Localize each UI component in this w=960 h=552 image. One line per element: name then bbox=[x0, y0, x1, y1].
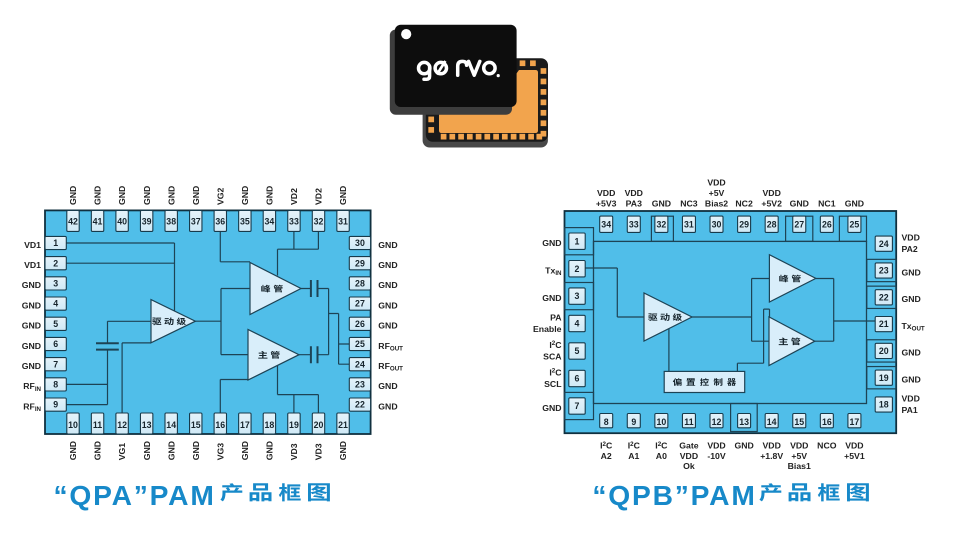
svg-text:3: 3 bbox=[575, 291, 580, 301]
svg-text:15: 15 bbox=[794, 417, 804, 427]
svg-text:1: 1 bbox=[575, 236, 580, 246]
svg-text:18: 18 bbox=[265, 420, 275, 430]
svg-text:41: 41 bbox=[93, 216, 103, 226]
svg-text:7: 7 bbox=[53, 359, 58, 369]
svg-text:29: 29 bbox=[355, 258, 365, 268]
svg-text:14: 14 bbox=[166, 420, 176, 430]
svg-text:Ok: Ok bbox=[683, 461, 695, 471]
svg-text:26: 26 bbox=[822, 220, 832, 230]
svg-text:21: 21 bbox=[338, 420, 348, 430]
svg-text:36: 36 bbox=[215, 216, 225, 226]
svg-text:VD1: VD1 bbox=[24, 240, 41, 250]
svg-text:GND: GND bbox=[265, 186, 275, 205]
svg-text:I2C: I2C bbox=[628, 441, 641, 451]
svg-text:PA1: PA1 bbox=[902, 405, 918, 415]
svg-text:2: 2 bbox=[575, 264, 580, 274]
svg-text:27: 27 bbox=[355, 299, 365, 309]
svg-text:19: 19 bbox=[289, 420, 299, 430]
svg-text:5: 5 bbox=[53, 319, 58, 329]
svg-text:35: 35 bbox=[240, 216, 250, 226]
svg-text:VDD: VDD bbox=[707, 178, 725, 188]
svg-text:NCO: NCO bbox=[817, 441, 837, 451]
svg-text:GND: GND bbox=[378, 280, 397, 290]
svg-text:I2C: I2C bbox=[549, 367, 562, 377]
svg-text:VG3: VG3 bbox=[215, 443, 225, 461]
svg-text:RFOUT: RFOUT bbox=[378, 341, 403, 353]
svg-text:VDD: VDD bbox=[680, 451, 698, 461]
svg-text:I2C: I2C bbox=[600, 441, 613, 451]
svg-text:GND: GND bbox=[902, 294, 921, 304]
svg-text:+5V: +5V bbox=[709, 188, 725, 198]
svg-text:GND: GND bbox=[142, 186, 152, 205]
svg-text:VDD: VDD bbox=[902, 233, 920, 243]
svg-text:28: 28 bbox=[767, 220, 777, 230]
svg-text:GND: GND bbox=[542, 293, 561, 303]
svg-text:40: 40 bbox=[117, 216, 127, 226]
svg-text:Gate: Gate bbox=[679, 441, 698, 451]
svg-text:6: 6 bbox=[53, 339, 58, 349]
svg-text:8: 8 bbox=[53, 380, 58, 390]
svg-text:SCA: SCA bbox=[543, 351, 562, 361]
svg-text:VDD: VDD bbox=[790, 441, 808, 451]
svg-text:19: 19 bbox=[879, 373, 889, 383]
svg-text:A0: A0 bbox=[656, 451, 667, 461]
svg-text:NC3: NC3 bbox=[680, 198, 698, 208]
svg-text:I2C: I2C bbox=[655, 441, 668, 451]
svg-text:GND: GND bbox=[378, 300, 397, 310]
svg-text:GND: GND bbox=[378, 381, 397, 391]
svg-text:PA2: PA2 bbox=[902, 244, 918, 254]
svg-text:VG2: VG2 bbox=[215, 187, 225, 205]
svg-text:13: 13 bbox=[142, 420, 152, 430]
svg-text:RFOUT: RFOUT bbox=[378, 361, 403, 373]
svg-text:TxIN: TxIN bbox=[545, 266, 562, 278]
svg-text:VDD: VDD bbox=[625, 188, 643, 198]
svg-text:GND: GND bbox=[22, 280, 41, 290]
svg-text:“QPB”PAM: “QPB”PAM bbox=[592, 479, 756, 511]
svg-text:GND: GND bbox=[338, 186, 348, 205]
svg-text:RFIN: RFIN bbox=[23, 381, 41, 393]
svg-text:11: 11 bbox=[93, 420, 102, 430]
svg-text:20: 20 bbox=[879, 346, 889, 356]
svg-text:31: 31 bbox=[338, 216, 348, 226]
svg-text:GND: GND bbox=[240, 441, 250, 460]
svg-text:+1.8V: +1.8V bbox=[760, 451, 783, 461]
svg-text:30: 30 bbox=[712, 220, 722, 230]
svg-text:18: 18 bbox=[879, 400, 889, 410]
svg-text:I2C: I2C bbox=[549, 340, 562, 350]
svg-text:39: 39 bbox=[142, 216, 152, 226]
svg-text:VDD: VDD bbox=[902, 393, 920, 403]
svg-text:GND: GND bbox=[142, 441, 152, 460]
svg-text:PA3: PA3 bbox=[626, 198, 642, 208]
svg-text:Enable: Enable bbox=[533, 324, 562, 334]
svg-text:4: 4 bbox=[575, 319, 580, 329]
svg-text:22: 22 bbox=[879, 292, 889, 302]
svg-text:24: 24 bbox=[879, 239, 889, 249]
svg-text:37: 37 bbox=[191, 216, 201, 226]
svg-text:28: 28 bbox=[355, 279, 365, 289]
svg-text:30: 30 bbox=[355, 238, 365, 248]
svg-text:10: 10 bbox=[656, 417, 666, 427]
svg-text:22: 22 bbox=[355, 400, 365, 410]
svg-text:6: 6 bbox=[575, 374, 580, 384]
svg-text:GND: GND bbox=[734, 441, 753, 451]
svg-text:GND: GND bbox=[542, 238, 561, 248]
svg-text:+5V1: +5V1 bbox=[844, 451, 865, 461]
svg-text:PA: PA bbox=[550, 312, 562, 322]
svg-text:GND: GND bbox=[652, 198, 671, 208]
svg-text:20: 20 bbox=[314, 420, 324, 430]
svg-text:14: 14 bbox=[767, 417, 777, 427]
svg-text:NC1: NC1 bbox=[818, 198, 836, 208]
svg-text:RFIN: RFIN bbox=[23, 401, 41, 413]
svg-text:13: 13 bbox=[739, 417, 749, 427]
svg-text:34: 34 bbox=[601, 220, 611, 230]
svg-text:+5V3: +5V3 bbox=[596, 198, 617, 208]
svg-text:“QPA”PAM: “QPA”PAM bbox=[54, 479, 216, 511]
svg-text:12: 12 bbox=[712, 417, 722, 427]
svg-text:GND: GND bbox=[22, 361, 41, 371]
svg-text:GND: GND bbox=[93, 441, 103, 460]
svg-text:25: 25 bbox=[355, 339, 365, 349]
svg-text:31: 31 bbox=[684, 220, 694, 230]
svg-text:SCL: SCL bbox=[544, 379, 562, 389]
svg-text:GND: GND bbox=[378, 321, 397, 331]
svg-text:VDD: VDD bbox=[597, 188, 615, 198]
svg-text:VDD: VDD bbox=[845, 441, 863, 451]
svg-text:GND: GND bbox=[93, 186, 103, 205]
svg-text:GND: GND bbox=[378, 260, 397, 270]
svg-text:TxOUT: TxOUT bbox=[902, 321, 925, 333]
svg-text:GND: GND bbox=[117, 186, 127, 205]
svg-text:42: 42 bbox=[68, 216, 78, 226]
svg-text:23: 23 bbox=[879, 266, 889, 276]
svg-text:16: 16 bbox=[215, 420, 225, 430]
svg-text:25: 25 bbox=[850, 220, 860, 230]
svg-text:+5V: +5V bbox=[791, 451, 807, 461]
svg-text:VG1: VG1 bbox=[117, 443, 127, 461]
svg-text:3: 3 bbox=[53, 279, 58, 289]
svg-text:17: 17 bbox=[850, 417, 860, 427]
svg-text:8: 8 bbox=[604, 417, 609, 427]
svg-text:VDD: VDD bbox=[763, 188, 781, 198]
svg-text:33: 33 bbox=[629, 220, 639, 230]
svg-text:GND: GND bbox=[68, 441, 78, 460]
svg-text:VD2: VD2 bbox=[289, 188, 299, 205]
svg-text:23: 23 bbox=[355, 380, 365, 390]
svg-text:+5V2: +5V2 bbox=[761, 198, 782, 208]
svg-text:5: 5 bbox=[575, 346, 580, 356]
svg-text:GND: GND bbox=[902, 267, 921, 277]
svg-text:GND: GND bbox=[191, 441, 201, 460]
svg-text:10: 10 bbox=[68, 420, 78, 430]
svg-text:GND: GND bbox=[378, 240, 397, 250]
svg-text:GND: GND bbox=[240, 186, 250, 205]
svg-text:12: 12 bbox=[117, 420, 127, 430]
svg-text:GND: GND bbox=[22, 321, 41, 331]
svg-text:-10V: -10V bbox=[707, 451, 726, 461]
svg-text:VD3: VD3 bbox=[289, 443, 299, 460]
svg-text:34: 34 bbox=[265, 216, 275, 226]
svg-text:9: 9 bbox=[631, 417, 636, 427]
svg-text:GND: GND bbox=[902, 348, 921, 358]
svg-text:GND: GND bbox=[845, 198, 864, 208]
svg-text:17: 17 bbox=[240, 420, 250, 430]
svg-text:VD1: VD1 bbox=[24, 260, 41, 270]
svg-text:32: 32 bbox=[314, 216, 324, 226]
svg-text:VD3: VD3 bbox=[314, 443, 324, 460]
svg-text:GND: GND bbox=[902, 375, 921, 385]
svg-text:9: 9 bbox=[53, 400, 58, 410]
svg-text:GND: GND bbox=[790, 198, 809, 208]
svg-text:GND: GND bbox=[166, 186, 176, 205]
svg-text:GND: GND bbox=[191, 186, 201, 205]
svg-text:4: 4 bbox=[53, 299, 58, 309]
svg-text:Bias2: Bias2 bbox=[705, 198, 728, 208]
svg-text:GND: GND bbox=[265, 441, 275, 460]
svg-text:29: 29 bbox=[739, 220, 749, 230]
svg-text:GND: GND bbox=[68, 186, 78, 205]
svg-text:11: 11 bbox=[684, 417, 693, 427]
svg-text:21: 21 bbox=[879, 319, 889, 329]
svg-text:16: 16 bbox=[822, 417, 832, 427]
svg-text:GND: GND bbox=[378, 401, 397, 411]
svg-text:Bias1: Bias1 bbox=[788, 461, 811, 471]
svg-text:A1: A1 bbox=[628, 451, 639, 461]
svg-text:32: 32 bbox=[656, 220, 666, 230]
svg-text:A2: A2 bbox=[601, 451, 612, 461]
svg-text:33: 33 bbox=[289, 216, 299, 226]
svg-text:GND: GND bbox=[22, 341, 41, 351]
svg-text:7: 7 bbox=[575, 401, 580, 411]
svg-text:VDD: VDD bbox=[763, 441, 781, 451]
svg-text:38: 38 bbox=[166, 216, 176, 226]
svg-text:NC2: NC2 bbox=[735, 198, 753, 208]
svg-text:GND: GND bbox=[22, 300, 41, 310]
svg-text:VD2: VD2 bbox=[314, 188, 324, 205]
svg-text:27: 27 bbox=[794, 220, 804, 230]
svg-text:GND: GND bbox=[542, 403, 561, 413]
svg-text:2: 2 bbox=[53, 258, 58, 268]
svg-text:VDD: VDD bbox=[707, 441, 725, 451]
svg-text:GND: GND bbox=[338, 441, 348, 460]
svg-text:15: 15 bbox=[191, 420, 201, 430]
svg-text:GND: GND bbox=[166, 441, 176, 460]
svg-text:24: 24 bbox=[355, 359, 365, 369]
svg-text:1: 1 bbox=[53, 238, 58, 248]
svg-text:26: 26 bbox=[355, 319, 365, 329]
